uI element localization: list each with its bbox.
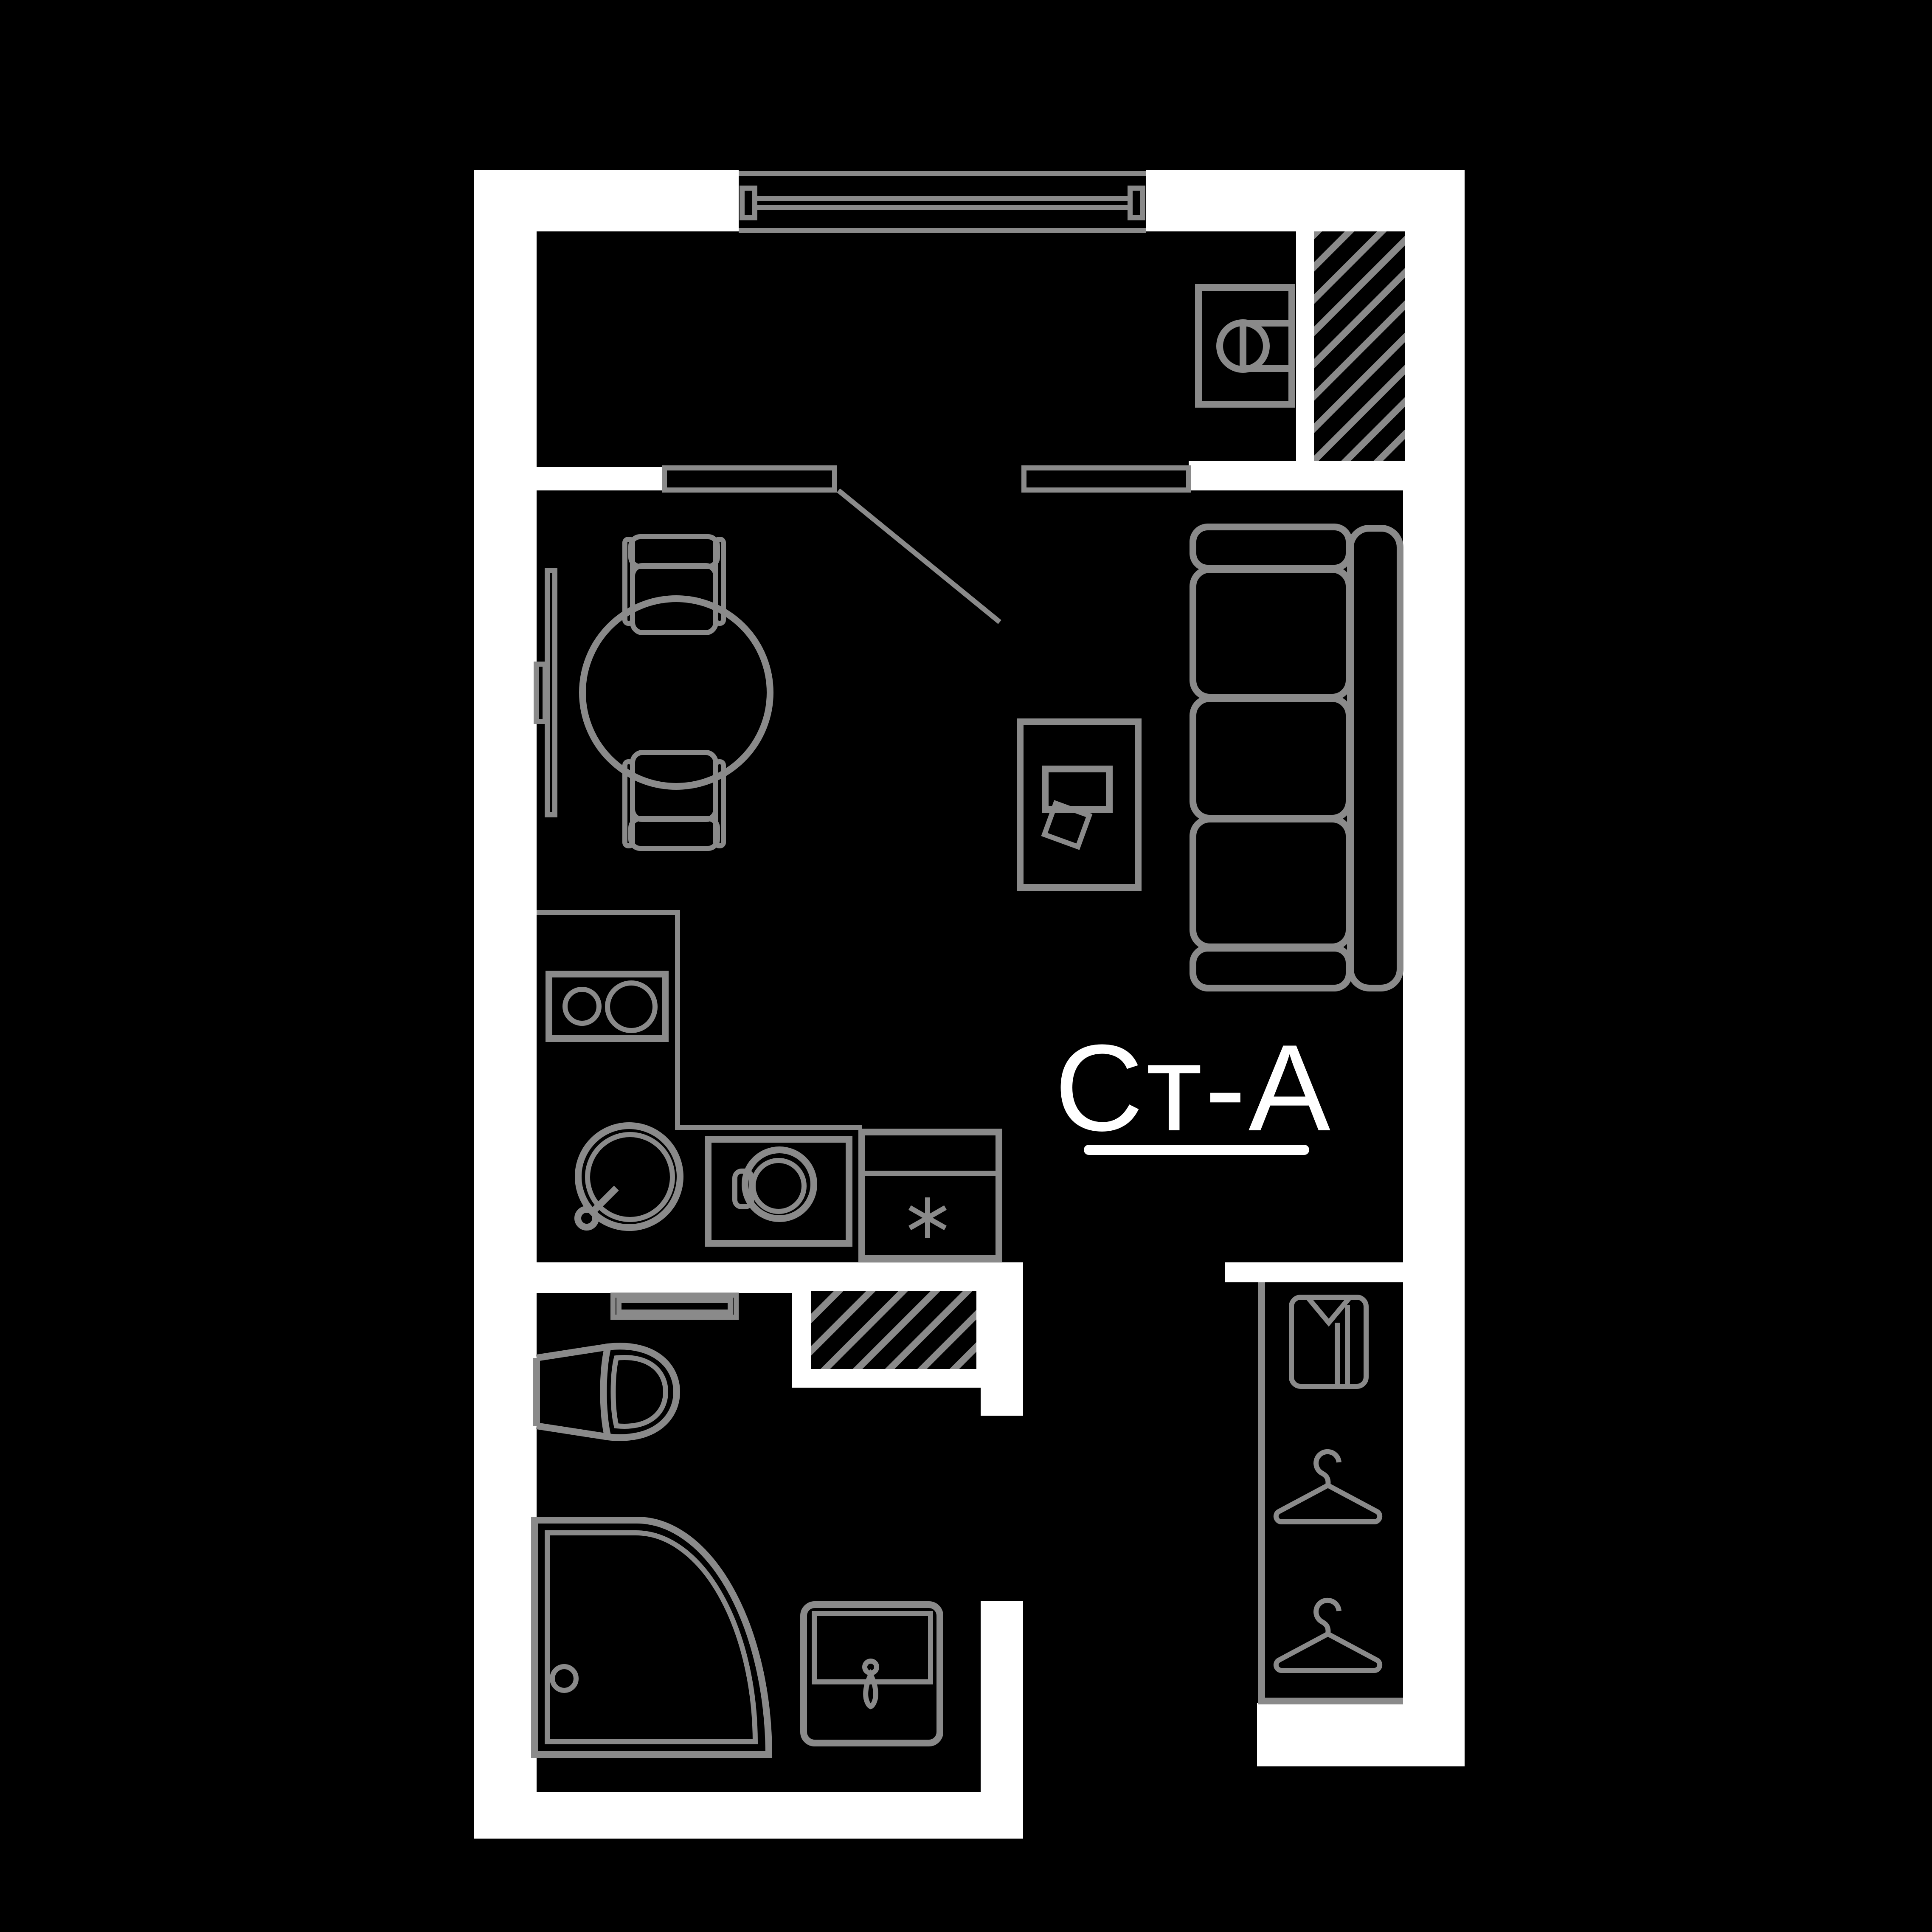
top-wall-left-segment	[474, 170, 739, 231]
right-exterior-wall	[1403, 231, 1465, 1766]
partition-segment-right	[1024, 468, 1189, 490]
upper-vent-shaft-hatch	[1314, 231, 1405, 461]
plan-title-text: Ст-А	[1055, 1019, 1333, 1157]
shaft-bottom-wall-band	[1189, 461, 1405, 490]
plan-title: Ст-А	[1055, 1019, 1333, 1157]
window-left-cap	[742, 188, 755, 218]
top-wall-right-segment	[1146, 170, 1465, 231]
balcony-partition-wall-white	[537, 467, 664, 490]
floor-plan-canvas: Ст-А	[0, 0, 1932, 1932]
shaft-left-wall-strip	[1296, 231, 1314, 490]
wardrobe-top-wall	[1225, 1262, 1462, 1282]
bathroom-right-wall-upper	[981, 1293, 1023, 1416]
bathroom-bottom-wall	[474, 1792, 1023, 1839]
background	[0, 0, 1932, 1932]
lower-vent-shaft-hatch	[811, 1291, 976, 1369]
window-right-cap	[1130, 188, 1143, 218]
plan-title-underline	[1084, 1145, 1309, 1155]
left-exterior-wall	[474, 170, 537, 1839]
partition-segment-left	[664, 468, 835, 490]
floor-plan-stage: Ст-А	[0, 0, 1932, 1932]
wardrobe-bottom-wall	[1257, 1703, 1462, 1766]
